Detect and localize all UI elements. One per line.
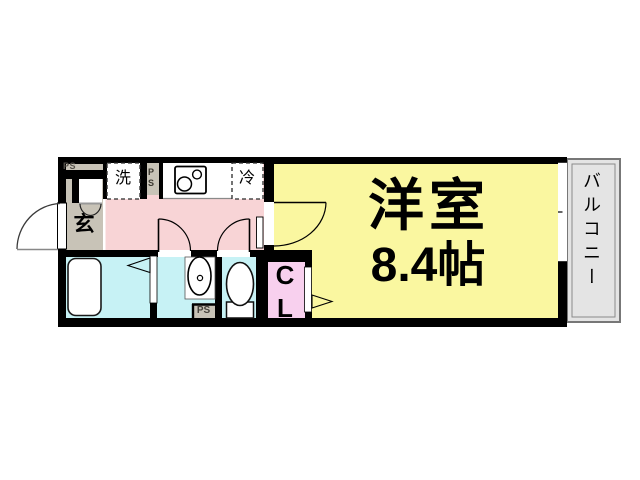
entrance-cabinet — [79, 179, 102, 204]
wall-closet-right-lower — [305, 312, 312, 319]
floorplan-drawing — [0, 0, 640, 480]
bathtub — [68, 259, 101, 316]
wall-washroom-toilet — [215, 250, 222, 318]
pipe-space-lavatory-label: PS — [192, 306, 215, 316]
corridor-door-leaf — [257, 217, 264, 248]
wall-entrance-cabinet-side — [72, 179, 80, 203]
balcony-label: バルコニー — [582, 171, 600, 291]
floorplan-canvas: PS 洗 PS 冷 玄 洋室 8.4帖 CL PS バルコニー — [0, 0, 640, 480]
wall-entrance-cabinet-top — [66, 170, 103, 179]
closet-door-panel — [305, 267, 312, 312]
closet-label: CL — [272, 260, 298, 326]
wall-closet-right-upper — [305, 250, 312, 267]
pipe-space-kitchen-label: PS — [146, 167, 155, 189]
wall-top — [58, 157, 567, 164]
washer-label: 洗 — [106, 171, 140, 187]
washroom-door-opening — [158, 250, 191, 257]
pipe-space-entrance-label: PS — [63, 162, 76, 171]
room-name-label: 洋室 — [338, 178, 520, 234]
stove-burner-small — [193, 170, 202, 179]
room-size-label: 8.4帖 — [330, 242, 526, 290]
toilet-bowl — [227, 263, 254, 306]
wall-ps-right — [159, 157, 163, 199]
bathroom-door-panel — [150, 256, 157, 303]
room-door-opening — [264, 202, 274, 245]
entrance-label: 玄 — [64, 214, 104, 235]
wall-bottom — [58, 318, 567, 327]
fridge-label: 冷 — [230, 171, 264, 187]
entrance-door-arc — [17, 204, 60, 250]
wall-corridor-room-upper — [264, 157, 274, 202]
wall-bath-washroom-lower — [150, 303, 157, 318]
toilet-door-opening — [217, 250, 250, 257]
basin-drain-icon — [197, 275, 202, 280]
stove-burner-large — [178, 177, 192, 191]
